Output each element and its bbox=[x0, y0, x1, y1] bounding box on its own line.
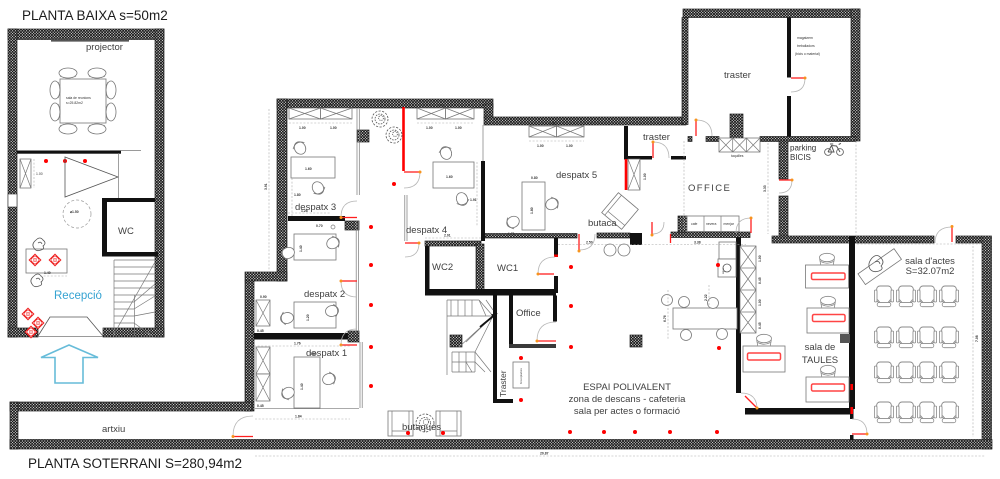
svg-text:⌀1.50: ⌀1.50 bbox=[70, 210, 79, 214]
svg-text:traster: traster bbox=[643, 132, 670, 143]
svg-text:PLANTA BAIXA s=50m2: PLANTA BAIXA s=50m2 bbox=[22, 8, 168, 23]
svg-text:1.76: 1.76 bbox=[294, 342, 301, 346]
svg-text:1.00: 1.00 bbox=[455, 126, 462, 130]
svg-text:1.00: 1.00 bbox=[566, 144, 573, 148]
svg-text:fotocopiadora: fotocopiadora bbox=[519, 368, 523, 384]
svg-text:0.45: 0.45 bbox=[257, 404, 264, 408]
svg-text:nevera: nevera bbox=[706, 222, 716, 226]
svg-text:WC2: WC2 bbox=[432, 262, 453, 273]
svg-text:zona de descans - cafeteria: zona de descans - cafeteria bbox=[569, 394, 686, 405]
svg-text:1.80: 1.80 bbox=[530, 207, 534, 214]
svg-text:1.40: 1.40 bbox=[299, 245, 303, 252]
svg-text:0.45: 0.45 bbox=[438, 104, 445, 108]
svg-text:1.00: 1.00 bbox=[330, 126, 337, 130]
svg-text:S=32.07m2: S=32.07m2 bbox=[906, 266, 955, 277]
svg-text:1.20: 1.20 bbox=[306, 314, 310, 321]
svg-text:(bicis o material): (bicis o material) bbox=[795, 52, 820, 56]
svg-text:1.00: 1.00 bbox=[537, 144, 544, 148]
svg-text:0.45: 0.45 bbox=[325, 104, 332, 108]
svg-text:1.00: 1.00 bbox=[426, 126, 433, 130]
svg-text:WC1: WC1 bbox=[497, 263, 518, 274]
svg-text:magatzem: magatzem bbox=[797, 36, 813, 40]
svg-text:despatx 5: despatx 5 bbox=[556, 170, 597, 181]
svg-text:projector: projector bbox=[86, 42, 123, 53]
svg-text:WC: WC bbox=[118, 226, 134, 237]
svg-text:1.00: 1.00 bbox=[299, 126, 306, 130]
svg-text:sala per actes o formació: sala per actes o formació bbox=[574, 406, 680, 417]
svg-text:0.45: 0.45 bbox=[300, 104, 307, 108]
svg-text:1.00: 1.00 bbox=[643, 173, 647, 180]
svg-text:butaques: butaques bbox=[402, 422, 441, 433]
svg-text:0.80: 0.80 bbox=[531, 176, 538, 180]
svg-text:butaca: butaca bbox=[588, 218, 617, 229]
svg-text:3.91: 3.91 bbox=[264, 183, 268, 190]
svg-text:20.87: 20.87 bbox=[540, 452, 549, 456]
svg-text:1.40: 1.40 bbox=[44, 271, 51, 275]
svg-text:Traster: Traster bbox=[498, 370, 508, 397]
svg-text:s=25.82m2: s=25.82m2 bbox=[66, 101, 83, 105]
svg-text:2.22: 2.22 bbox=[704, 294, 708, 301]
svg-text:cafe: cafe bbox=[691, 222, 698, 226]
svg-text:aigua: aigua bbox=[722, 267, 725, 274]
svg-text:traster: traster bbox=[724, 70, 751, 81]
svg-text:despatx 2: despatx 2 bbox=[304, 289, 345, 300]
svg-text:0.45: 0.45 bbox=[549, 122, 556, 126]
svg-text:1.00: 1.00 bbox=[758, 299, 762, 306]
svg-text:4.53: 4.53 bbox=[912, 240, 919, 244]
svg-text:Recepció: Recepció bbox=[54, 290, 102, 302]
svg-text:despatx 1: despatx 1 bbox=[306, 348, 347, 359]
svg-text:ESPAI POLIVALENT: ESPAI POLIVALENT bbox=[583, 382, 671, 393]
svg-text:1.71: 1.71 bbox=[508, 232, 515, 236]
svg-text:1.00: 1.00 bbox=[758, 255, 762, 262]
svg-text:1.84: 1.84 bbox=[295, 415, 302, 419]
svg-text:0.45: 0.45 bbox=[758, 322, 762, 329]
svg-text:6.76: 6.76 bbox=[663, 315, 667, 322]
svg-text:Office: Office bbox=[516, 308, 541, 319]
svg-text:parking: parking bbox=[790, 144, 816, 153]
svg-text:1.80: 1.80 bbox=[294, 193, 301, 197]
svg-text:OFFICE: OFFICE bbox=[688, 183, 731, 194]
svg-text:0.45: 0.45 bbox=[257, 329, 264, 333]
svg-text:artxiu: artxiu bbox=[102, 424, 125, 435]
svg-text:1.00: 1.00 bbox=[36, 172, 43, 176]
svg-text:sala de reunions: sala de reunions bbox=[66, 96, 91, 100]
svg-text:0.45: 0.45 bbox=[758, 277, 762, 284]
svg-text:3.33: 3.33 bbox=[763, 185, 767, 192]
svg-text:1.91: 1.91 bbox=[470, 198, 477, 202]
svg-text:1.40: 1.40 bbox=[300, 383, 304, 390]
svg-text:3.38: 3.38 bbox=[694, 241, 701, 245]
svg-text:1.60: 1.60 bbox=[305, 167, 312, 171]
svg-text:1.60: 1.60 bbox=[446, 175, 453, 179]
svg-text:treballadors: treballadors bbox=[797, 44, 815, 48]
svg-text:0.90: 0.90 bbox=[260, 295, 267, 299]
svg-text:7.08: 7.08 bbox=[975, 335, 979, 342]
svg-text:TAULES: TAULES bbox=[802, 355, 838, 366]
svg-text:PLANTA SOTERRANI S=280,94m2: PLANTA SOTERRANI S=280,94m2 bbox=[28, 456, 242, 471]
svg-text:sala de: sala de bbox=[805, 342, 836, 353]
svg-text:menjar: menjar bbox=[724, 222, 735, 226]
svg-text:despatx 4: despatx 4 bbox=[406, 225, 447, 236]
svg-text:despatx 3: despatx 3 bbox=[295, 202, 336, 213]
svg-text:0.70: 0.70 bbox=[316, 224, 323, 228]
svg-text:2.50: 2.50 bbox=[586, 241, 593, 245]
svg-text:taquilles: taquilles bbox=[731, 154, 744, 158]
svg-text:BICIS: BICIS bbox=[790, 153, 811, 162]
